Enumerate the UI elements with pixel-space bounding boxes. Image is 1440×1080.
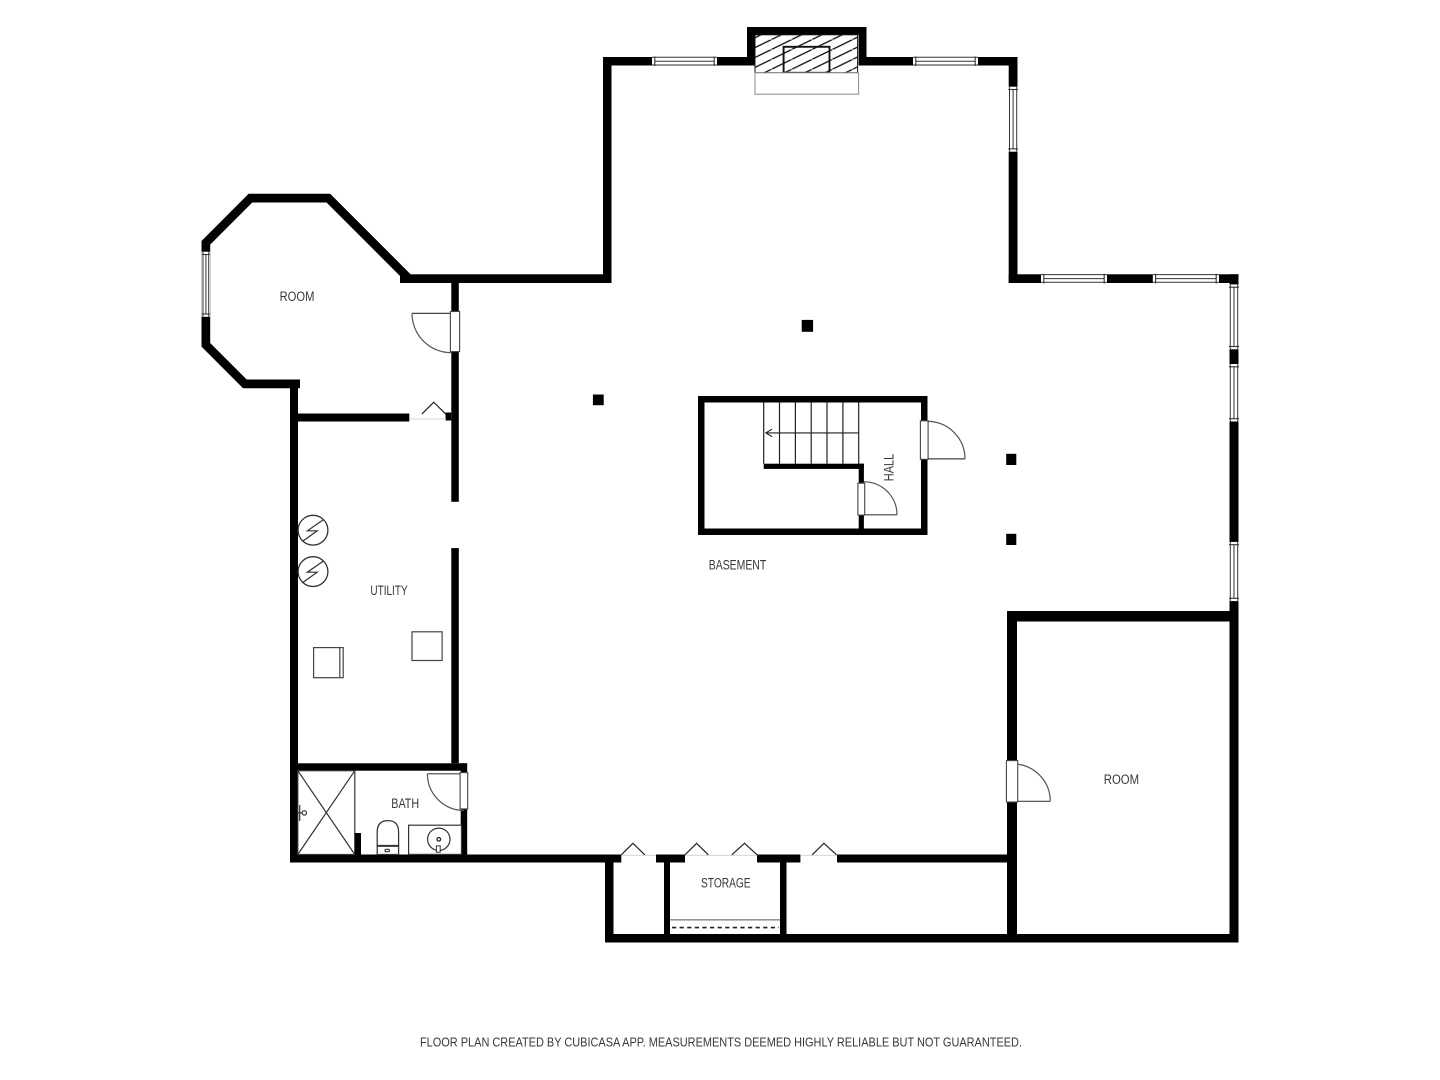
svg-text:ROOM: ROOM [1104,772,1139,787]
svg-text:BATH: BATH [391,796,419,811]
svg-text:HALL: HALL [882,454,897,482]
svg-text:STORAGE: STORAGE [701,875,751,890]
svg-text:FLOOR PLAN CREATED BY CUBICASA: FLOOR PLAN CREATED BY CUBICASA APP. MEAS… [420,1035,1022,1050]
svg-text:ROOM: ROOM [280,289,315,304]
svg-text:UTILITY: UTILITY [370,583,407,598]
svg-text:BASEMENT: BASEMENT [709,558,767,573]
